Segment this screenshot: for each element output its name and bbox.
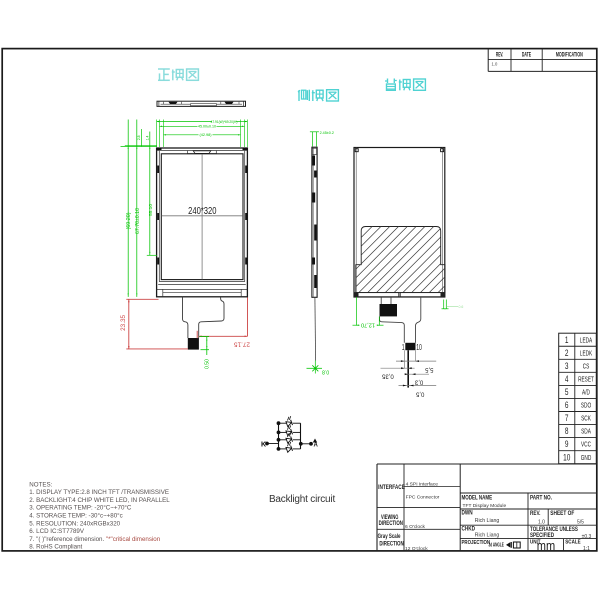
svg-text:0,35: 0,35 (381, 373, 393, 379)
svg-text:SDA: SDA (581, 429, 591, 436)
svg-text:240*320: 240*320 (188, 205, 216, 216)
svg-text:Rich Liang: Rich Liang (475, 532, 500, 538)
svg-text:0,5: 0,5 (415, 390, 424, 396)
svg-text:45.00±0.10: 45.00±0.10 (198, 125, 216, 129)
svg-text:7: 7 (565, 413, 569, 423)
svg-text:NOTES:: NOTES: (29, 481, 52, 488)
svg-text:4. STORAGE TEMP: -30°c~+80°c: 4. STORAGE TEMP: -30°c~+80°c (29, 513, 122, 520)
svg-text:7. "( )"reference dimension.: 7. "( )"reference dimension. "*"critical… (29, 536, 160, 543)
svg-text:5. RESOLUTION: 240xRGBx320: 5. RESOLUTION: 240xRGBx320 (29, 520, 120, 527)
svg-text:VCC: VCC (581, 442, 592, 449)
svg-text:4 SPI Interface: 4 SPI Interface (406, 481, 439, 487)
svg-text:mm: mm (537, 538, 555, 553)
svg-text:PROJECTION: PROJECTION (462, 540, 491, 547)
svg-text:12 O'clock: 12 O'clock (405, 546, 428, 552)
svg-text:DIRECTION: DIRECTION (379, 541, 403, 548)
svg-text:MODEL NAME: MODEL NAME (462, 495, 493, 502)
svg-text:5,5: 5,5 (424, 366, 433, 372)
svg-text:3: 3 (565, 361, 569, 371)
svg-text:MODIFICATION: MODIFICATION (556, 52, 583, 59)
svg-text:67.70±0.10: 67.70±0.10 (135, 208, 141, 234)
svg-text:1.0: 1.0 (538, 520, 545, 526)
svg-text:REV.: REV. (530, 511, 541, 518)
svg-text:55.10: 55.10 (148, 204, 154, 216)
svg-text:5/5: 5/5 (577, 520, 584, 526)
svg-text:RESET: RESET (578, 377, 594, 384)
svg-text:6. LCD IC:ST7789V: 6. LCD IC:ST7789V (29, 528, 85, 535)
svg-text:FPC Connector: FPC Connector (406, 495, 440, 501)
svg-text:PART NO.: PART NO. (530, 495, 552, 502)
svg-text:27.15: 27.15 (234, 340, 250, 347)
svg-text:8: 8 (565, 426, 569, 436)
svg-text:(42.98): (42.98) (199, 133, 212, 137)
svg-text:DATE: DATE (522, 52, 532, 59)
svg-text:DWN: DWN (462, 510, 473, 517)
svg-text:10: 10 (563, 452, 571, 462)
svg-text:47.91(W)*69.20(H): 47.91(W)*69.20(H) (211, 120, 238, 124)
svg-text:12,70: 12,70 (361, 322, 375, 328)
svg-text:2: 2 (565, 348, 569, 358)
svg-text:LEDA: LEDA (580, 338, 592, 345)
svg-text:1:1: 1:1 (583, 546, 590, 552)
svg-text:9: 9 (565, 439, 569, 449)
svg-text:0.6: 0.6 (459, 305, 464, 309)
svg-text:SHEET OF: SHEET OF (550, 511, 575, 518)
svg-text:SCK: SCK (581, 416, 591, 423)
svg-text:2.45±0.2: 2.45±0.2 (320, 131, 334, 135)
svg-text:DIRECTION: DIRECTION (379, 520, 403, 527)
svg-text:4: 4 (565, 374, 569, 384)
svg-text:23.35: 23.35 (120, 314, 127, 330)
svg-text:Gray Scale: Gray Scale (378, 534, 401, 541)
svg-text:0.50: 0.50 (204, 359, 210, 369)
svg-text:SDO: SDO (581, 403, 592, 410)
svg-text:Backlight circuit: Backlight circuit (269, 494, 335, 505)
svg-text:6 O'clock: 6 O'clock (405, 524, 426, 530)
svg-text:3d ANGLE: 3d ANGLE (489, 542, 504, 548)
svg-text:TFT Display Module: TFT Display Module (463, 503, 507, 509)
svg-text:SCALE: SCALE (565, 539, 581, 546)
svg-text:GND: GND (581, 455, 592, 462)
svg-text:5: 5 (565, 387, 569, 397)
svg-text:K: K (261, 442, 266, 449)
svg-text:0,3: 0,3 (414, 379, 423, 385)
svg-text:REV.: REV. (496, 52, 504, 59)
svg-text:CS: CS (583, 364, 590, 371)
svg-text:3. OPERATING TEMP: -20°C~+70°C: 3. OPERATING TEMP: -20°C~+70°C (29, 505, 132, 512)
svg-text:(69.20): (69.20) (126, 212, 132, 229)
svg-text:1.0: 1.0 (492, 62, 498, 67)
svg-text:1. DISPLAY TYPE:2.8 INCH TFT /: 1. DISPLAY TYPE:2.8 INCH TFT /TRANSMISSI… (29, 489, 169, 496)
svg-text:10: 10 (416, 344, 422, 352)
svg-text:CHKD: CHKD (462, 526, 476, 533)
svg-text:A: A (314, 443, 319, 449)
svg-text:LEDK: LEDK (580, 351, 592, 358)
svg-text:2.8: 2.8 (137, 135, 141, 140)
svg-text:0.8: 0.8 (322, 368, 329, 374)
svg-text:A/D: A/D (582, 390, 590, 397)
svg-text:6: 6 (565, 400, 569, 410)
svg-text:INTERFACE: INTERFACE (378, 485, 405, 492)
svg-text:Rich Liang: Rich Liang (475, 518, 500, 524)
svg-text:±0.3: ±0.3 (582, 534, 592, 540)
svg-text:1: 1 (565, 335, 569, 345)
svg-text:2. BACKLIGHT:4 CHIP WHITE LED,: 2. BACKLIGHT:4 CHIP WHITE LED, IN PARALL… (29, 497, 170, 504)
svg-text:1.4: 1.4 (145, 136, 149, 141)
svg-text:8. RoHS Compliant: 8. RoHS Compliant (29, 544, 82, 551)
